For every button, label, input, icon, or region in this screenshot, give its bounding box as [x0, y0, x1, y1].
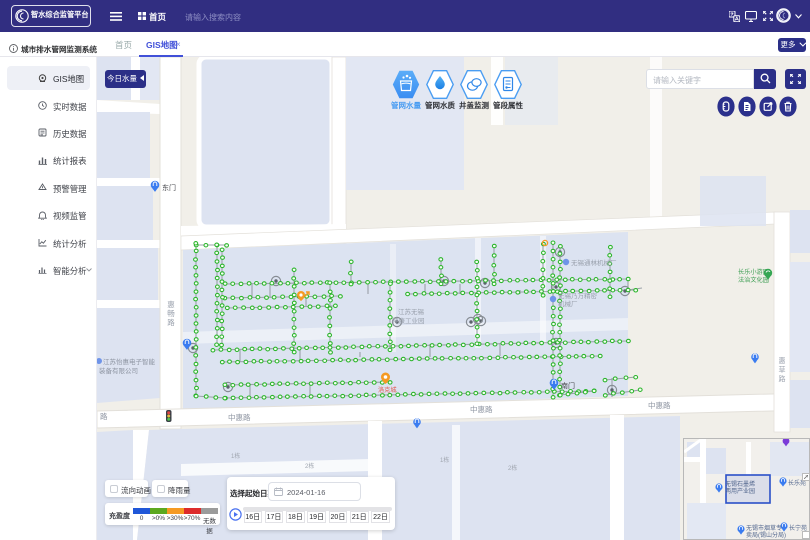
svg-text:江苏无锡: 江苏无锡: [398, 307, 425, 316]
svg-text:南门: 南门: [561, 381, 575, 390]
svg-text:无锡市烟草专: 无锡市烟草专: [746, 524, 782, 532]
svg-text:2栋: 2栋: [305, 462, 314, 470]
svg-text:惠: 惠: [779, 356, 786, 365]
svg-text:2栋: 2栋: [508, 464, 517, 472]
svg-text:井盖监测: 井盖监测: [459, 100, 489, 110]
svg-text:洛克城: 洛克城: [378, 386, 397, 394]
svg-text:中惠路: 中惠路: [648, 400, 671, 410]
svg-text:中惠路: 中惠路: [228, 412, 251, 422]
svg-text:无锡石墨烯: 无锡石墨烯: [725, 480, 755, 488]
svg-text:管段属性: 管段属性: [493, 100, 523, 110]
svg-text:无锡乃万精密: 无锡乃万精密: [558, 291, 598, 300]
svg-text:无锡通林机械厂: 无锡通林机械厂: [571, 258, 617, 267]
svg-text:机械厂: 机械厂: [558, 299, 578, 308]
svg-text:两用产业园: 两用产业园: [725, 487, 755, 495]
svg-text:东门: 东门: [162, 183, 176, 192]
svg-text:法治文化园: 法治文化园: [738, 276, 769, 284]
svg-text:路: 路: [779, 374, 786, 383]
svg-text:卖局(锡山分局): 卖局(锡山分局): [746, 531, 786, 539]
svg-text:管网水质: 管网水质: [425, 100, 455, 110]
svg-text:畅: 畅: [167, 308, 175, 318]
svg-text:1栋: 1栋: [440, 456, 449, 464]
svg-text:装备有限公司: 装备有限公司: [99, 366, 138, 375]
svg-text:中惠路: 中惠路: [470, 404, 493, 414]
svg-text:路: 路: [167, 317, 175, 327]
svg-text:路: 路: [100, 411, 108, 421]
svg-text:江苏怡惠电子智能: 江苏怡惠电子智能: [103, 357, 156, 366]
svg-text:管网水量: 管网水量: [391, 100, 421, 110]
svg-text:神康工业园: 神康工业园: [392, 316, 425, 325]
svg-text:草: 草: [779, 365, 786, 374]
svg-text:惠: 惠: [167, 299, 175, 309]
svg-text:1栋: 1栋: [231, 452, 240, 460]
